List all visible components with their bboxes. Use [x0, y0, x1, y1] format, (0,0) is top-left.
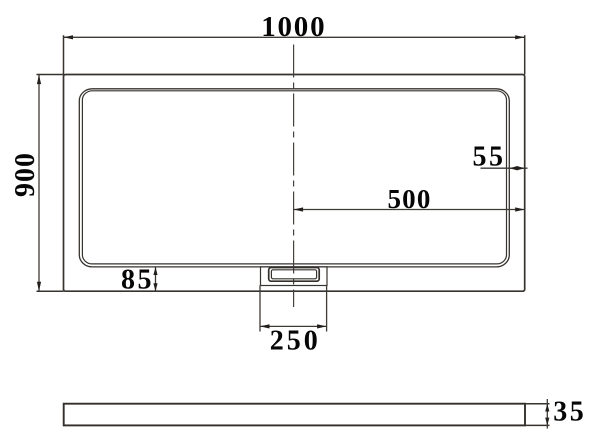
svg-text:250: 250 [270, 326, 321, 357]
svg-text:35: 35 [553, 396, 586, 427]
svg-text:900: 900 [10, 152, 41, 197]
svg-text:1000: 1000 [261, 11, 326, 43]
svg-text:55: 55 [473, 141, 506, 172]
svg-text:500: 500 [387, 184, 431, 214]
svg-text:85: 85 [121, 265, 154, 296]
